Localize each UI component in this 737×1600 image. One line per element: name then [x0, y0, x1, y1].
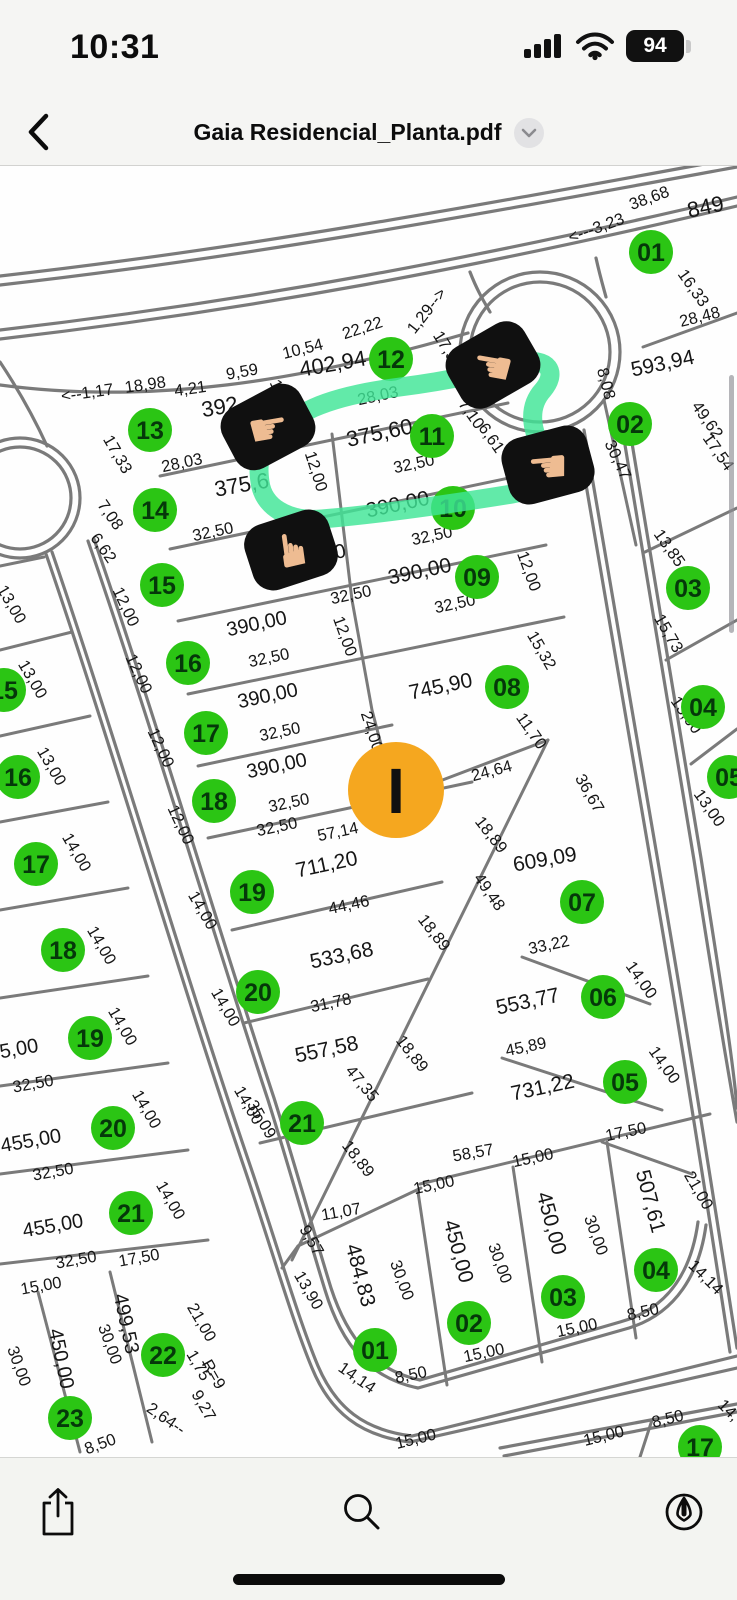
lot-number: 14: [141, 497, 169, 525]
lot-number-badge: 03: [541, 1275, 585, 1319]
nav-bar: Gaia Residencial_Planta.pdf: [0, 100, 737, 166]
lot-number-badge: 20: [91, 1106, 135, 1150]
lot-number: 16: [174, 650, 202, 678]
lot-number: 19: [76, 1025, 104, 1053]
document-title: Gaia Residencial_Planta.pdf: [193, 119, 501, 146]
lot-number-badge: 05: [603, 1060, 647, 1104]
lot-number-badge: 04: [634, 1248, 678, 1292]
lot-number: 01: [361, 1337, 389, 1365]
lot-number-badge: 02: [447, 1301, 491, 1345]
share-button[interactable]: [26, 1480, 90, 1544]
lot-number-badge: 07: [560, 880, 604, 924]
lot-number-badge: 23: [48, 1396, 92, 1440]
markup-button[interactable]: [652, 1480, 716, 1544]
lot-number-badge: 13: [128, 408, 172, 452]
plot-plan-map[interactable]: <--1,1718,984,219,5910,5422,22402,941,29…: [0, 0, 737, 1600]
lot-number: 22: [149, 1342, 177, 1370]
lot-number: 21: [288, 1110, 316, 1138]
lot-number-badge: 16: [166, 641, 210, 685]
lot-number: 08: [493, 674, 521, 702]
title-menu-button[interactable]: [514, 118, 544, 148]
share-icon: [36, 1486, 80, 1538]
marker-letter: I: [387, 755, 405, 827]
lot-number: 19: [238, 879, 266, 907]
lot-number: 20: [244, 979, 272, 1007]
lot-number-badge: 22: [141, 1333, 185, 1377]
status-bar: 10:31 94: [0, 0, 737, 100]
lot-number: 21: [117, 1200, 145, 1228]
lot-number: 17: [22, 851, 50, 879]
lot-number: 02: [455, 1310, 483, 1338]
lot-number: 07: [568, 889, 596, 917]
pointing-hand-icon: ☚: [525, 439, 571, 494]
cellular-signal-icon: [524, 31, 564, 61]
lot-number-badge: 09: [455, 555, 499, 599]
search-icon: [339, 1489, 385, 1535]
letter-marker-annotation[interactable]: I: [348, 742, 444, 838]
lot-number-badge: 15: [140, 563, 184, 607]
battery-percent: 94: [643, 34, 666, 58]
lot-number: 02: [616, 411, 644, 439]
lot-number: 05: [611, 1069, 639, 1097]
lot-number-badge: 17: [14, 842, 58, 886]
lot-number-badge: 01: [353, 1328, 397, 1372]
lot-number-badge: 19: [230, 870, 274, 914]
lot-number: 18: [200, 788, 228, 816]
lot-number: 03: [674, 575, 702, 603]
lot-number-badge: 04: [681, 685, 725, 729]
pdf-viewer-screen: <--1,1718,984,219,5910,5422,22402,941,29…: [0, 0, 737, 1600]
lot-number: 15: [148, 572, 176, 600]
lot-number-badge: 12: [369, 337, 413, 381]
lot-number: 04: [642, 1257, 670, 1285]
lot-number: 06: [589, 984, 617, 1012]
lot-number-badge: 18: [192, 779, 236, 823]
wifi-icon: [575, 31, 615, 61]
lot-number: 03: [549, 1284, 577, 1312]
home-indicator[interactable]: [233, 1574, 505, 1585]
lot-number-badge: 11: [410, 414, 454, 458]
lot-number-badge: 18: [41, 928, 85, 972]
lot-number-badge: 14: [133, 488, 177, 532]
lot-number: 11: [419, 423, 446, 451]
lot-number-badge: 06: [581, 975, 625, 1019]
lot-number: 09: [463, 564, 491, 592]
lot-number-badge: 17: [184, 711, 228, 755]
lot-number: 12: [377, 346, 405, 374]
scrollbar[interactable]: [729, 375, 734, 633]
lot-number: 16: [4, 764, 32, 792]
lot-number-badge: 08: [485, 665, 529, 709]
lot-number-badge: 19: [68, 1016, 112, 1060]
clock: 10:31: [70, 28, 159, 67]
lot-number: 17: [192, 720, 220, 748]
lot-number: 23: [56, 1405, 84, 1433]
lot-number: 13: [136, 417, 164, 445]
markup-icon: [659, 1487, 709, 1537]
lot-number-badge: 21: [109, 1191, 153, 1235]
pointing-hand-icon: ☛: [264, 526, 321, 574]
lot-number: 18: [49, 937, 77, 965]
lot-number: 04: [689, 694, 717, 722]
lot-number-badge: 21: [280, 1101, 324, 1145]
lot-number-badge: 02: [608, 402, 652, 446]
title-disclosure-chevron-icon: [521, 128, 537, 138]
lot-number-badge: 03: [666, 566, 710, 610]
battery-icon: 94: [626, 30, 691, 62]
lot-number: 20: [99, 1115, 127, 1143]
lot-number: 15: [0, 677, 18, 705]
lot-number-badge: 01: [629, 230, 673, 274]
lot-number: 05: [715, 764, 737, 792]
lot-number-badge: 20: [236, 970, 280, 1014]
search-button[interactable]: [330, 1480, 394, 1544]
lot-number: 01: [637, 239, 665, 267]
